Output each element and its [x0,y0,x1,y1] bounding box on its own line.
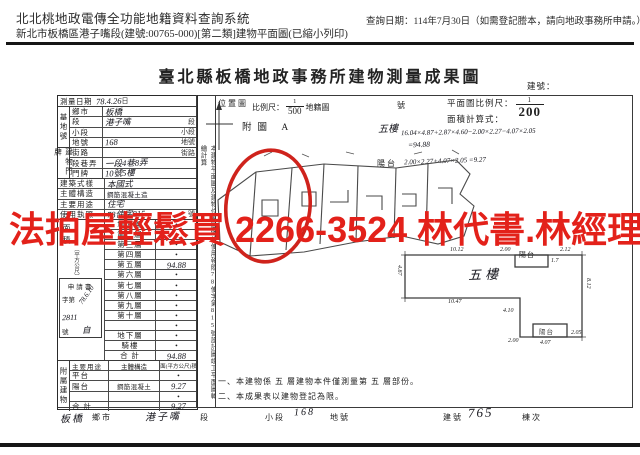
site-row-lot: 地號 168地號 [70,137,197,147]
system-title: 北北桃地政電傳全功能地籍資料查詢系統 [16,8,250,27]
scale-denominator: 500 [286,106,304,116]
attr-style-row: 建築式樣 本國式 [58,179,197,188]
floor-label: 第六層 [105,270,156,279]
bottom-divider [0,443,640,447]
annex-structure: 鋼筋混凝土 [109,381,160,390]
floor-row: 第五層94.88 [105,259,197,269]
floor-row: 第八層• [105,290,197,300]
site-city-label: 鄉市 [70,107,103,116]
site-section-label: 段 [70,117,103,126]
annex-use [70,392,109,401]
floor-row: 第六層• [105,269,197,279]
note-2: 二、本成果表以建物登記為限。 [218,391,344,402]
footer-subsection-label: 小段 [265,412,285,423]
site-lot-value: 168 [105,137,118,147]
site-group-label: 基地號 [58,107,70,147]
site-lot-suffix: 地號 [181,137,195,147]
attr-structure-value: 鋼筋混凝土造 [107,189,148,199]
floor-row: 第九層• [105,300,197,310]
dim-label: 10.47 [448,299,462,305]
floor-row-total: 合 計94.88 [105,350,197,360]
document-subtitle: 新北市板橋區港子嘴段(建號:00765-000)[第二類]建物平面圖(已縮小列印… [16,26,348,41]
floor-label: 合 計 [105,351,156,360]
floor-plan-drawing [398,246,630,346]
floor-value: • [156,291,197,300]
site-section: 基地號 鄉市 板橋 段 港子嘴段 小段 小段 地號 168地號 [58,106,197,147]
door-lane-value: 一段4巷8弄 [105,157,148,167]
floor-value: • [156,311,197,320]
scale-fraction: 1 500 [286,99,304,116]
annex-row: • [70,391,197,401]
annex-group-label: 附屬建物 [58,361,70,411]
attr-structure-label: 主體構造 [58,189,105,198]
door-row-street: 街路 街路 [70,148,197,157]
floor-value: • [156,301,197,310]
site-subsection-suffix: 小段 [181,127,195,137]
door-street-label: 街路 [70,148,103,157]
site-section-value: 港子嘴 [105,116,131,126]
application-line3: 號 [62,326,72,336]
application-box: 申請書 字第 78.6.10 2811 號 自 [59,278,102,338]
annex-header-area: 面(平方公尺)積 [160,362,197,370]
note-1: 一、本建物係 五 層建物本件僅測量第 五 層部份。 [218,376,419,387]
door-section: 建物門牌 街路 街路 段巷弄 一段4巷8弄 門牌 10號5樓 [58,147,197,178]
top-divider [6,42,634,45]
footer-lot-suffix: 地號 [330,412,350,423]
floor-value: • [156,321,197,330]
floor-value: • [156,270,197,279]
building-no-label: 建號： [527,80,556,92]
dim-label: 2.00 [508,338,519,344]
annex-header-structure: 主體構造 [109,361,160,370]
annex-section: 附屬建物 主要用途 主體構造 面(平方公尺)積 平台 • 陽台 鋼筋混凝土 9.… [58,360,197,411]
footer-building-no-value: 765 [468,405,494,422]
watermark-text: 法拍屋輕鬆買 2266-3524 林代書.林經理 [9,201,640,253]
door-lane-label: 段巷弄 [70,158,103,167]
floor-label: 地下層 [105,331,156,340]
floor-label: 騎樓 [105,341,156,350]
floorplan-scale-fraction: 1 200 [516,97,545,118]
survey-date-row: 測量日期 78.4.26 日 [58,96,197,106]
dim-label: 8.12 [585,278,591,289]
survey-date-label: 測量日期 [58,96,92,106]
survey-date-value: 78.4.26 [96,96,122,106]
sheet-number-label: 號 [397,100,405,111]
footer-section-value: 港子嘴 [145,407,182,423]
door-street-suffix: 街路 [181,148,195,157]
floor-row: 第七層• [105,279,197,289]
site-row-subsection: 小段 小段 [70,127,197,137]
floor-label: 第八層 [105,291,156,300]
floorplan-scale-label: 平面圖比例尺： [447,97,514,109]
footer-lot-value: 168 [294,407,315,419]
dim-label: 4.10 [503,308,514,314]
door-group-label: 建物門牌 [58,148,70,178]
floor-label: 第五層 [105,260,156,269]
site-lot-label: 地號 [70,138,103,147]
figure-a-label: 附圖 A [242,119,294,133]
site-row-city: 鄉市 板橋 [70,107,197,116]
query-date: 查詢日期：114年7月30日（如需登記謄本，請向地政事務所申請。） [366,13,640,27]
floor-value: 94.88 [156,259,197,269]
annex-row: 陽台 鋼筋混凝土 9.27 [70,380,197,390]
calc-line1: 16.04×4.87+2.87×4.60−2.00×2.27−4.07×2.05 [401,127,536,137]
footer-section-suffix: 段 [200,412,210,423]
floor-label: 第七層 [105,280,156,289]
scale-label: 比例尺： [252,102,284,113]
annex-header-use: 主要用途 [70,361,109,370]
floor-label: 第十層 [105,311,156,320]
map-floor-note: 五樓 [378,120,399,136]
floor-row: 第十層• [105,310,197,320]
dim-label: 1.7 [551,258,559,264]
site-section-suffix: 段 [188,117,195,127]
annex-area: • [160,392,197,401]
scale-suffix: 地籍圖 [306,102,330,113]
dim-label: 2.05 [571,330,582,336]
attr-structure-row: 主體構造 鋼筋混凝土造 [58,188,197,198]
site-row-section: 段 港子嘴段 [70,116,197,126]
annex-header-row: 主要用途 主體構造 面(平方公尺)積 [70,361,197,370]
site-subsection-label: 小段 [70,128,103,137]
floor-value: 94.88 [156,350,197,360]
floor-value: • [156,341,197,350]
floor-value: • [156,331,197,340]
dim-label: 4.07 [540,340,551,346]
annex-structure [109,371,160,380]
annex-area: • [160,371,197,380]
door-number-value: 10號5樓 [105,168,135,178]
annex-structure [109,392,160,401]
application-hand: 自 [82,324,91,336]
survey-date-suffix: 日 [122,96,129,106]
floor-row: 騎樓• [105,340,197,350]
annex-row: 平台 • [70,370,197,380]
floor-label [105,321,156,330]
floor-row: • [105,320,197,330]
attr-style-value: 本國式 [107,179,133,188]
annex-use: 陽台 [70,381,109,390]
annex-area: 9.27 [160,380,197,390]
footer-city-value: 板橋 [60,410,85,426]
calc-label: 面積計算式： [447,113,504,125]
door-row-number: 門牌 10號5樓 [70,168,197,178]
floor-value: • [156,281,197,290]
door-number-label: 門牌 [70,169,103,178]
door-row-lane: 段巷弄 一段4巷8弄 [70,157,197,167]
footer-city-suffix: 鄉市 [92,412,112,423]
dim-label: 4.87 [396,265,402,276]
location-map-scale: 比例尺： 1 500 地籍圖 [252,99,330,116]
floorplan-scale-numerator: 1 [528,97,533,104]
footer-unit-label: 棟次 [522,412,542,423]
site-city-value: 板橋 [105,107,122,116]
floorplan-scale-denominator: 200 [516,104,545,118]
annex-use: 平台 [70,371,109,380]
floor-label: 第九層 [105,301,156,310]
footer-building-no-label: 建號 [443,412,463,423]
floorplan-room-label: 五樓 [468,263,503,283]
floorplan-balcony2-label: 陽台 [539,326,554,336]
attr-style-label: 建築式樣 [58,179,105,188]
application-number: 2811 [62,313,78,323]
floor-row: 地下層• [105,330,197,340]
